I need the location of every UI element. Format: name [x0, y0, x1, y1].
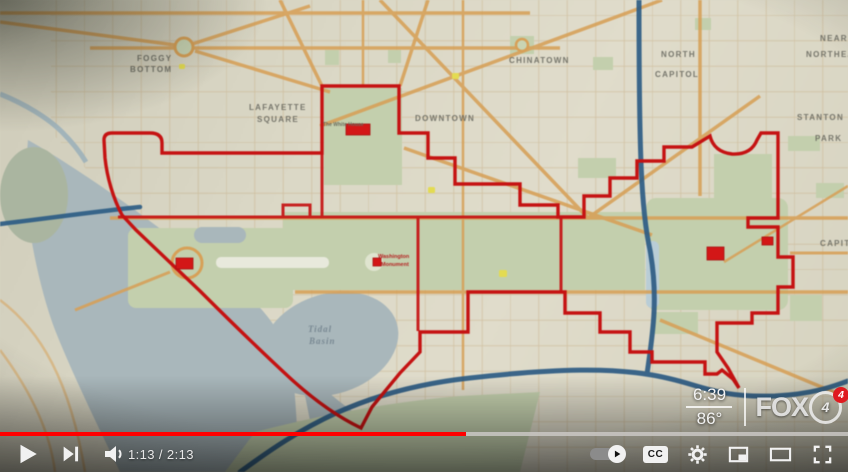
fox-logo-text: FOX — [755, 392, 808, 423]
autoplay-toggle[interactable] — [590, 448, 624, 460]
miniplayer-icon — [727, 443, 750, 466]
map-label: NORTH — [661, 50, 696, 59]
fox-channel-badge: 4 — [833, 387, 848, 403]
station-overlay: 6:39 86° FOX 4 4 — [683, 386, 842, 428]
poi-label: The White House — [323, 122, 364, 128]
map-label: CAPITOL — [820, 239, 848, 248]
reflecting-pool — [216, 257, 329, 268]
play-icon — [14, 441, 40, 467]
divider — [744, 388, 746, 426]
gear-icon — [687, 444, 708, 465]
volume-button[interactable] — [102, 442, 126, 466]
map-label: SQUARE — [257, 115, 299, 124]
capitol-marker — [707, 247, 724, 260]
clock-temp-block: 6:39 86° — [683, 386, 735, 428]
play-button[interactable] — [14, 441, 40, 467]
volume-icon — [102, 442, 126, 466]
next-icon — [60, 443, 82, 465]
divider — [686, 406, 732, 408]
map-label: DOWNTOWN — [415, 114, 475, 123]
fullscreen-icon — [811, 443, 834, 466]
lincoln-memorial-marker — [176, 258, 193, 269]
map-label: FOGGY — [137, 54, 172, 63]
toggle-knob — [608, 445, 626, 463]
water-label: Tidal — [308, 324, 332, 334]
next-button[interactable] — [60, 443, 82, 465]
water-label: Basin — [309, 336, 336, 346]
map-label: LAFAYETTE — [249, 103, 307, 112]
poi-label: Washington — [378, 254, 409, 260]
settings-button[interactable] — [687, 444, 708, 465]
cc-icon: CC — [643, 446, 668, 463]
captions-button[interactable]: CC — [643, 446, 668, 463]
time-display: 1:13 / 2:13 — [128, 447, 194, 462]
roosevelt-island — [0, 147, 68, 243]
fox4-logo: FOX 4 4 — [755, 391, 842, 424]
miniplayer-button[interactable] — [727, 443, 750, 466]
map-label: PARK — [815, 134, 842, 143]
map-label: STANTON — [797, 113, 844, 122]
player-controls: 1:13 / 2:13 CC — [0, 436, 848, 472]
map-label: NEAR — [820, 34, 848, 43]
theater-mode-button[interactable] — [769, 443, 792, 466]
autoplay-play-icon — [612, 449, 622, 459]
white-house-grounds — [324, 88, 402, 185]
east-marker — [762, 237, 773, 245]
map-label: BOTTOM — [130, 65, 172, 74]
video-player[interactable]: FOGGY BOTTOM LAFAYETTE SQUARE CHINATOWN … — [0, 0, 848, 472]
map-label: CHINATOWN — [509, 56, 570, 65]
washington-circle — [175, 38, 193, 56]
map-label: CAPITOL — [655, 70, 699, 79]
map-label: NORTHEAST — [806, 50, 848, 59]
clock-text: 6:39 — [683, 386, 735, 404]
constitution-gardens-pond — [194, 227, 246, 243]
fullscreen-button[interactable] — [811, 443, 834, 466]
toggle-track — [590, 448, 624, 460]
poi-label: Monument — [381, 262, 409, 268]
theater-icon — [769, 443, 792, 466]
temperature-text: 86° — [683, 410, 735, 428]
